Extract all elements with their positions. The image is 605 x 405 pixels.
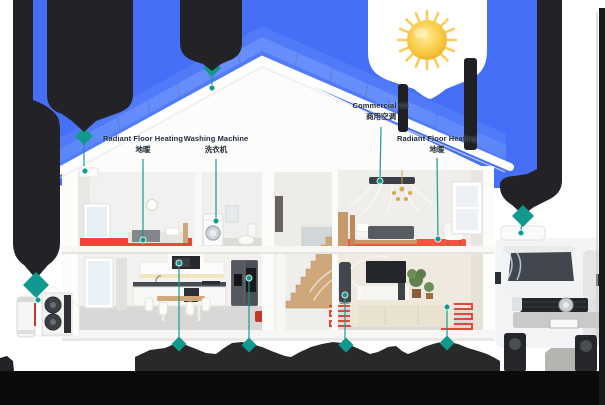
kitchen [78,253,264,330]
sun-icon [398,11,456,69]
mirror-left [495,272,501,284]
washing-machine [203,214,223,246]
label-en: Washing Machine [184,134,249,145]
refrigerator [231,260,258,306]
label-en: Commercial AC [353,101,410,112]
headlight-right [588,299,597,313]
hvac-house-diagram: Radiant Floor Heating 地暖 Washing Machine… [0,0,605,405]
corner-shape [0,356,14,371]
bedroom-left [78,168,195,246]
footer-bar [0,371,605,405]
window [87,207,107,237]
label-zh: 洗衣机 [184,145,249,156]
label-radiant-floor-heating-left: Radiant Floor Heating 地暖 [103,134,183,155]
window [88,261,110,305]
bedroom-right [337,170,483,251]
label-en: Radiant Floor Heating [397,134,477,145]
label-en: Radiant Floor Heating [103,134,183,145]
headlight-left [512,297,522,311]
sofa [350,300,454,327]
wall-clock [147,200,158,211]
laundry-room [202,172,262,246]
base-slab [62,330,494,339]
label-radiant-floor-heating-right: Radiant Floor Heating 地暖 [397,134,477,155]
tv [366,261,406,283]
water-tank [17,297,35,337]
door [275,196,283,232]
right-edge-bar [599,8,605,405]
label-commercial-ac: Commercial AC 商用空调 [353,101,410,122]
grille [520,298,588,312]
scene-canvas [0,0,605,405]
stove [202,281,220,285]
label-zh: 地暖 [397,145,477,156]
label-zh: 地暖 [103,145,183,156]
label-zh: 商用空调 [353,112,410,123]
license-plate [550,319,578,328]
wardrobe [338,212,348,246]
label-washing-machine: Washing Machine 洗衣机 [184,134,249,155]
outdoor-unit-group [17,286,79,337]
ceiling-ac-cassette [369,177,415,184]
heat-pump-outdoor-unit [42,293,72,335]
speaker [398,283,405,302]
